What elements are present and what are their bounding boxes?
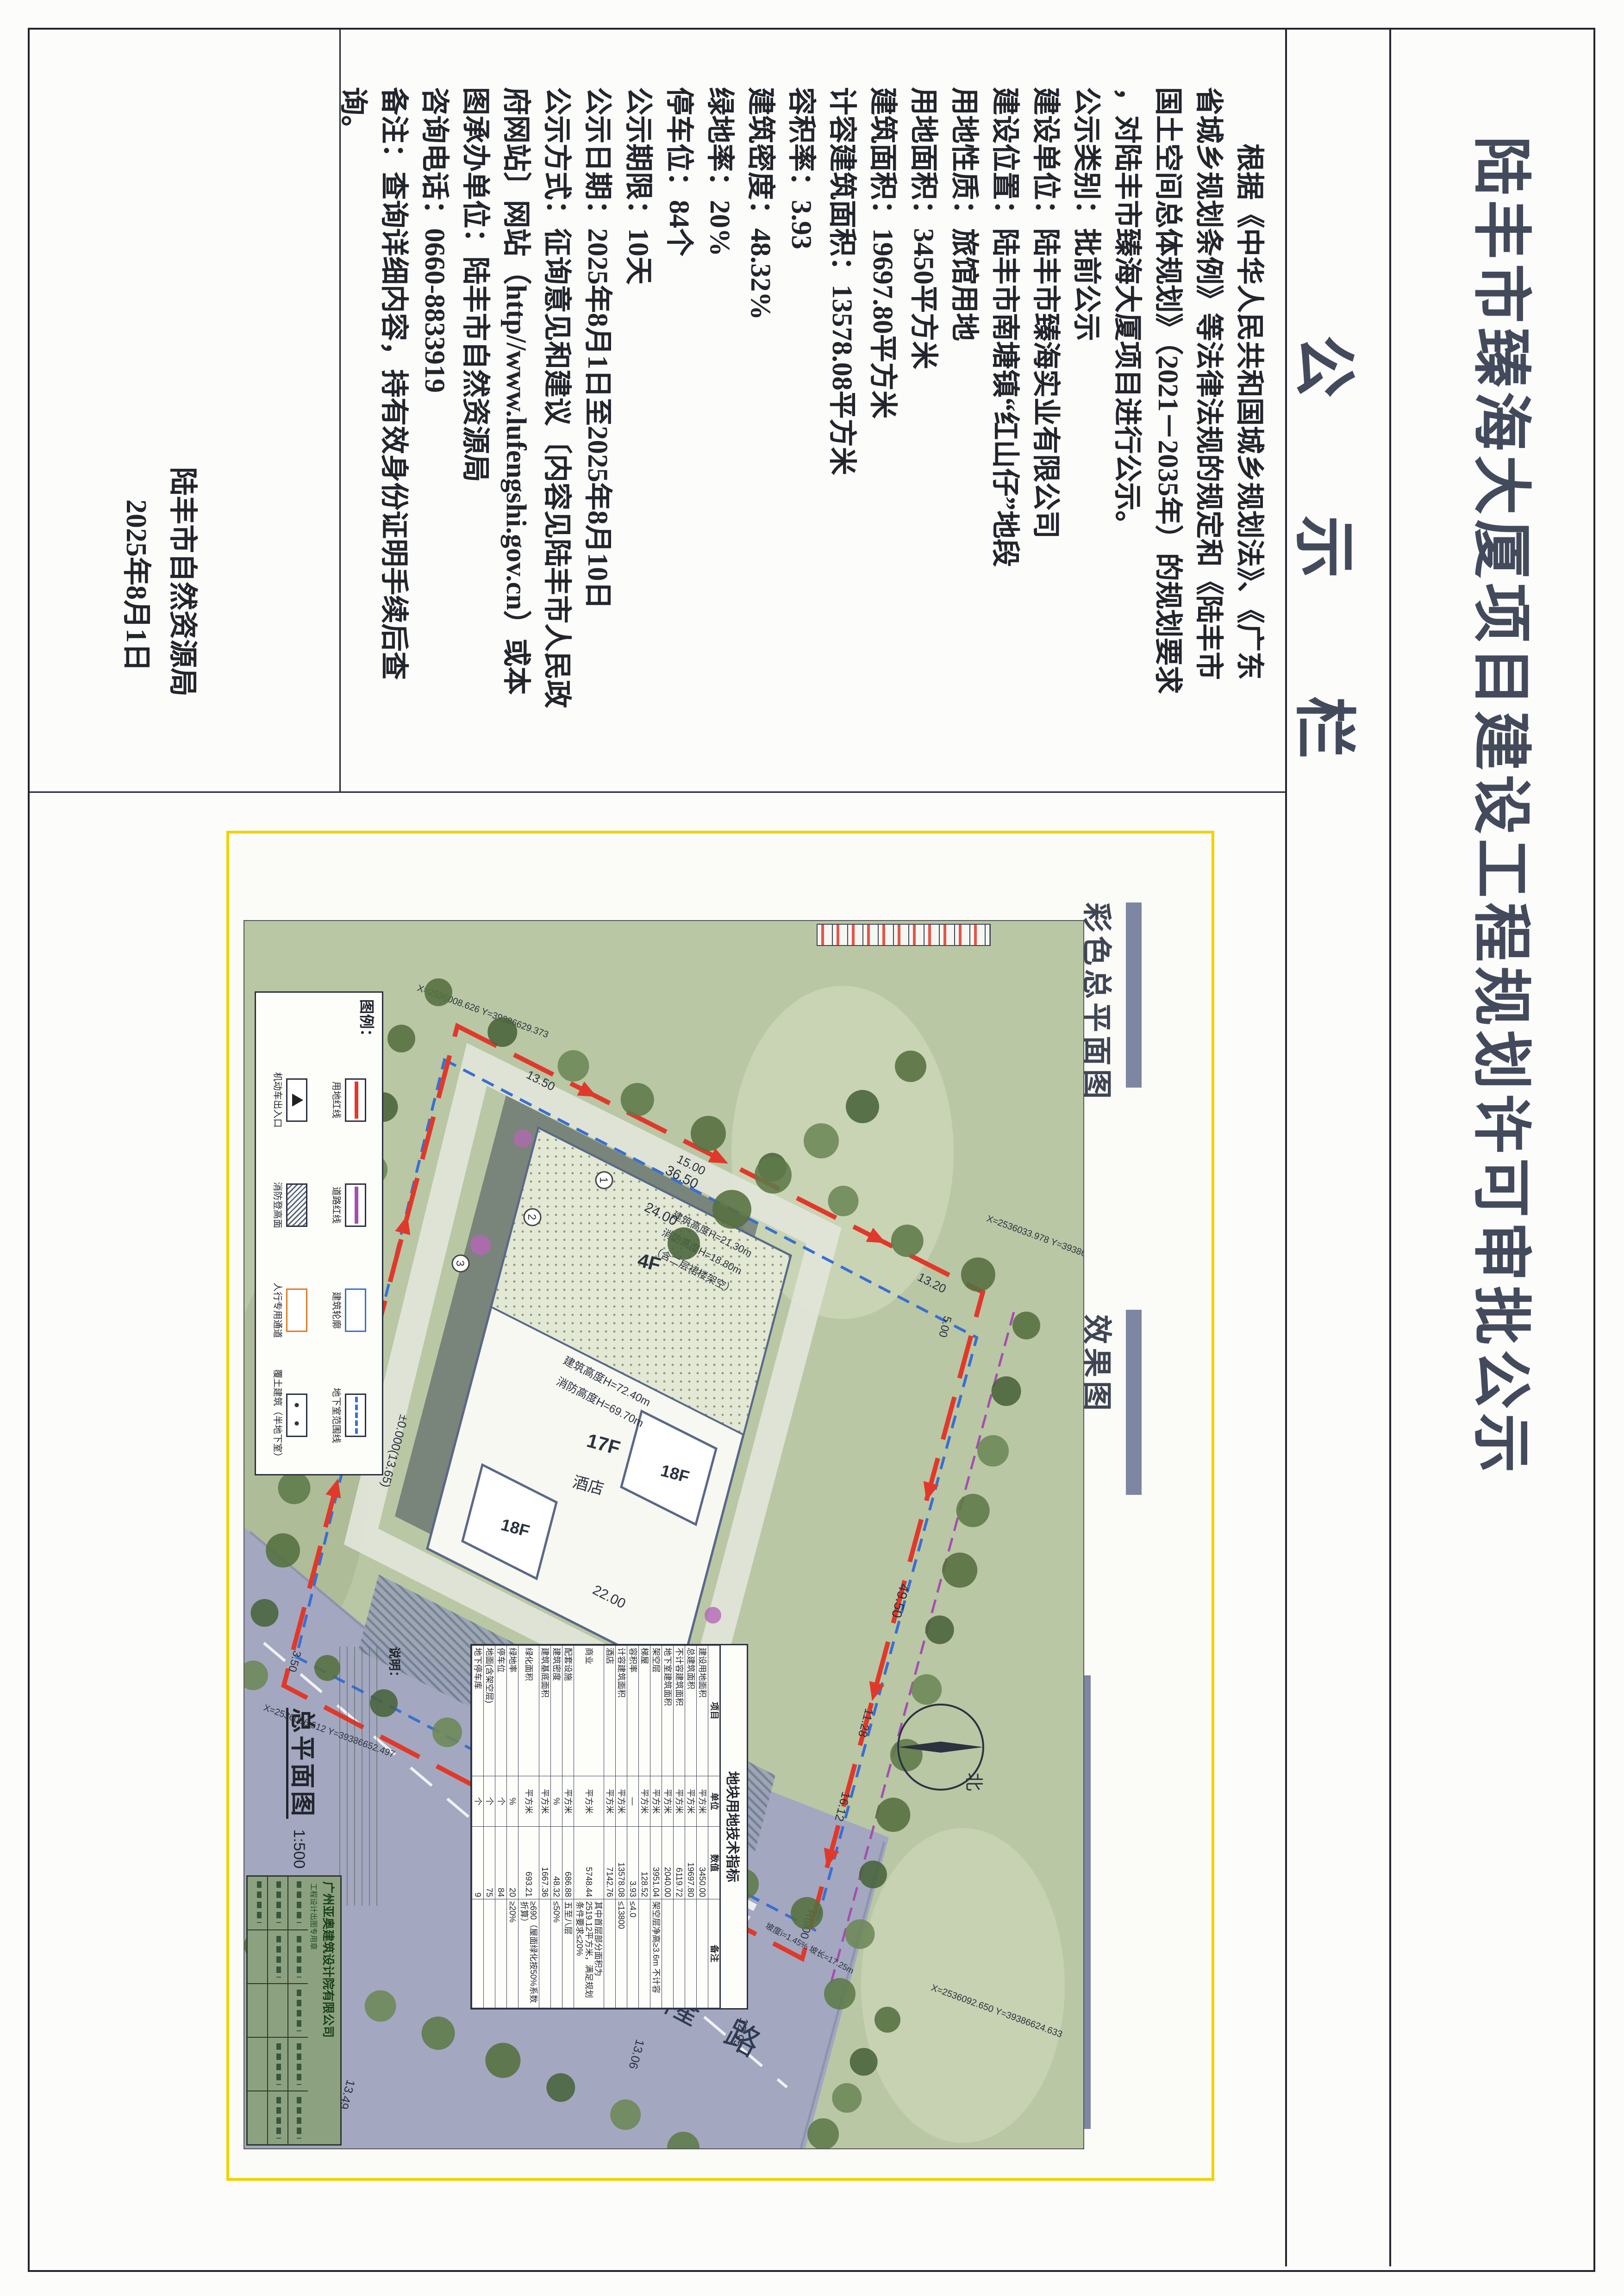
indicator-value: 20 <box>507 1827 518 1899</box>
indicator-value: 2040.00 <box>662 1827 674 1899</box>
planting-accent <box>705 1607 721 1624</box>
indicator-remark <box>604 1899 616 2008</box>
svg-text:11.28: 11.28 <box>856 1707 876 1739</box>
legend-grid: 用地红线 道路红线 建筑轮廓 地下室范围线 机动车出入口 消防登高面 人行专用通… <box>262 1048 377 1467</box>
signature-org: 陆丰市自然资源局 <box>165 467 206 697</box>
indicator-unit: 平方米 <box>539 1776 551 1827</box>
north-arrow: 北 <box>898 1705 984 1791</box>
indicator-remark <box>639 1899 650 2008</box>
page-title: 陆丰市臻海大厦项目建设工程规划许可审批公示 <box>1464 136 1549 1477</box>
indicator-remark: ≤13800 <box>616 1899 627 2008</box>
design-company-name: 广州亚奥建筑设计院有限公司 <box>320 1881 337 2038</box>
indicator-value: 693.21 <box>518 1827 539 1899</box>
indicator-unit: % <box>507 1776 518 1827</box>
indicator-item: 绿化面积 <box>518 1646 539 1776</box>
legend-swatch-pedestrian <box>287 1288 308 1332</box>
label-bar-rendering <box>1126 1310 1142 1495</box>
indicator-item: 停车位 <box>495 1646 507 1776</box>
scanned-notice-page: 陆丰市臻海大厦项目建设工程规划许可审批公示 公示栏 根据《中华人民共和国城乡规划… <box>0 0 1624 2296</box>
title-block: 广州亚奥建筑设计院有限公司 工程设计出图专用章 <box>246 1875 342 2146</box>
plan-scale-label: 总平面图 1:500 <box>287 1708 323 1869</box>
title-block-grid <box>248 1877 308 2144</box>
notice-line: 公示期限：10天 <box>618 87 658 781</box>
indicator-row: 梯屋 平方米 128.52 <box>639 1646 650 2008</box>
indicator-item: 不计容建筑面积 <box>674 1646 685 1776</box>
legend-label: 覆土建筑（半地下室） <box>273 1369 283 1462</box>
notes-fine-print <box>339 1647 384 1906</box>
legend-label: 建筑轮廓 <box>331 1292 342 1329</box>
notice-line: 停车位：84个 <box>658 87 699 781</box>
indicator-unit: — <box>627 1776 639 1827</box>
col-header: 数值 <box>708 1827 720 1899</box>
indicator-value: 6119.72 <box>674 1827 685 1899</box>
legend-swatch-entrance <box>287 1078 308 1122</box>
indicator-table-title: 地块用地技术指标 <box>720 1645 747 2008</box>
legend-label: 道路红线 <box>331 1187 342 1224</box>
col-header: 单位 <box>708 1776 720 1827</box>
legend-label: 消防登高面 <box>273 1182 283 1228</box>
indicator-item: 地面(含架空层) <box>484 1646 495 1776</box>
indicator-unit: 平方米 <box>604 1776 616 1827</box>
legend-box: 图例： 用地红线 道路红线 建筑轮廓 地下室范围线 机动车出入口 消防登高面 人… <box>255 991 383 1475</box>
notice-line: 用地面积：3450平方米 <box>903 87 943 781</box>
indicator-remark: ≥690（屋面绿化按50%系数折算） <box>518 1899 539 2008</box>
signature-date: 2025年8月1日 <box>119 499 160 672</box>
notice-line: ，对陆丰市臻海大厦项目进行公示。 <box>1106 87 1147 781</box>
plan-name: 总平面图 <box>286 1708 316 1819</box>
indicator-row: 不计容建筑面积 平方米 6119.72 <box>674 1646 685 2008</box>
indicator-row: 绿化面积 平方米 693.21 ≥690（屋面绿化按50%系数折算） <box>518 1646 539 2008</box>
indicator-unit: 平方米 <box>674 1776 685 1827</box>
indicator-item: 绿地率 <box>507 1646 518 1776</box>
indicator-unit: 平方米 <box>562 1776 574 1827</box>
notice-line: 建筑面积：19697.80平方米 <box>862 87 903 781</box>
col-header: 备注 <box>708 1899 720 2008</box>
indicator-row: 容积率 — 3.93 ≤4.0 <box>627 1646 639 2008</box>
indicator-item: 商业 <box>574 1646 604 1776</box>
indicator-unit: 平方米 <box>650 1776 662 1827</box>
indicator-value: 3.93 <box>627 1827 639 1899</box>
indicator-item: 地下室建筑面积 <box>662 1646 674 1776</box>
indicator-value: 9 <box>472 1827 484 1899</box>
title-row: 陆丰市臻海大厦项目建设工程规划许可审批公示 <box>1391 30 1593 2266</box>
indicator-row: 地下室建筑面积 平方米 2040.00 <box>662 1646 674 2008</box>
indicator-unit: 个 <box>472 1776 484 1827</box>
rotated-document-canvas: 陆丰市臻海大厦项目建设工程规划许可审批公示 公示栏 根据《中华人民共和国城乡规划… <box>0 0 1624 2296</box>
indicator-value: 75 <box>484 1827 495 1899</box>
col-header: 项目 <box>708 1646 720 1776</box>
drawing-stamp-label: 工程设计出图专用章 <box>309 1883 320 1950</box>
indicator-row: 建筑基底面积 平方米 1667.36 <box>539 1646 551 2008</box>
review-stamp-grid <box>817 924 991 946</box>
notes-block: 说明： <box>339 1647 404 1906</box>
legend-swatch-redline <box>345 1078 367 1122</box>
notice-line: 用地性质：旅馆用地 <box>943 87 984 781</box>
notice-text-block: 根据《中华人民共和国城乡规划法》、《广东省城乡规划条例》等法律法规的规定和《陆丰… <box>332 87 1269 781</box>
indicator-unit: 平方米 <box>616 1776 627 1827</box>
notice-line: 国土空间总体规划》（2021－2035年）的规划要求 <box>1147 87 1188 781</box>
indicator-unit: 个 <box>484 1776 495 1827</box>
notice-line: 计容建筑面积：13578.08平方米 <box>821 87 862 781</box>
indicator-row: 地面(含架空层) 个 75 <box>484 1646 495 2008</box>
indicator-row: 酒店 平方米 7142.76 <box>604 1646 616 2008</box>
notice-line: 建筑密度：48.32% <box>740 87 781 781</box>
notice-line: 绿地率：20% <box>699 87 740 781</box>
indicator-value: 128.52 <box>639 1827 650 1899</box>
indicator-remark: 架空层净高≥3.6m 不计容 <box>650 1899 662 2008</box>
indicator-value: 7142.76 <box>604 1827 616 1899</box>
indicator-item: 建筑基底面积 <box>539 1646 551 1776</box>
indicator-table: 地块用地技术指标 项目 单位 数值 备注 <box>470 1644 748 2010</box>
notice-line: 根据《中华人民共和国城乡规划法》、《广东 <box>1229 87 1269 781</box>
svg-text:1: 1 <box>597 1177 610 1183</box>
notice-line: 建设位置：陆丰市南塘镇“红山仔”地段 <box>984 87 1025 781</box>
indicator-row: 总建筑面积 平方米 19697.80 <box>685 1646 697 2008</box>
indicator-remark: ≤4.0 <box>627 1899 639 2008</box>
indicator-row: 计容建筑面积 平方米 13578.08 ≤13800 <box>616 1646 627 2008</box>
indicator-row: 商业 平方米 5748.44 其中首层部分面积为2519.12平方米，满足规划条… <box>574 1646 604 2008</box>
notice-line: 备注：查询详细内容，持有效身份证明手续后查 <box>373 87 414 781</box>
legend-swatch-building <box>345 1288 367 1332</box>
indicator-unit: 平方米 <box>574 1776 604 1827</box>
indicator-row: 地下停车库 个 9 <box>472 1646 484 2008</box>
svg-text:2: 2 <box>525 1214 538 1220</box>
indicator-item: 容积率 <box>627 1646 639 1776</box>
indicator-unit: 平方米 <box>662 1776 674 1827</box>
indicator-item: 总建筑面积 <box>685 1646 697 1776</box>
legend-swatch-covered <box>287 1394 308 1437</box>
notice-line: 图承办单位：陆丰市自然资源局 <box>455 87 495 781</box>
notice-line: 询。 <box>332 87 373 781</box>
indicator-row: 停车位 个 84 <box>495 1646 507 2008</box>
svg-text:16.12: 16.12 <box>832 1790 853 1823</box>
indicator-unit: 平方米 <box>639 1776 650 1827</box>
indicator-row: 建筑密度 % 48.32 ≤50% <box>551 1646 562 2008</box>
board-header-row: 公示栏 <box>1285 30 1391 2266</box>
indicator-item: 地下停车库 <box>472 1646 484 1776</box>
indicator-row: 绿地率 % 20 ≥20% <box>507 1646 518 2008</box>
site-plan-sheet: 车隆路 4F 17F 18F 18 <box>244 920 1084 2149</box>
indicator-item: 配套设施 <box>562 1646 574 1776</box>
board-label: 公示栏 <box>1285 335 1375 877</box>
indicator-value: 3450.00 <box>697 1827 708 1899</box>
indicator-item: 梯屋 <box>639 1646 650 1776</box>
indicator-unit: 平方米 <box>518 1776 539 1827</box>
indicator-value: 5748.44 <box>574 1827 604 1899</box>
indicator-item: 酒店 <box>604 1646 616 1776</box>
indicator-remark <box>662 1899 674 2008</box>
indicator-remark <box>697 1899 708 2008</box>
svg-text:49.50: 49.50 <box>888 1582 912 1619</box>
signature-divider <box>339 30 341 791</box>
notice-line: 省城乡规划条例》等法律法规的规定和《陆丰市 <box>1188 87 1229 781</box>
legend-label: 用地红线 <box>331 1082 342 1119</box>
notice-line: 府网站〕网站（http//www.lufengshi.gov.cn）或本 <box>495 87 536 781</box>
legend-label: 人行专用通道 <box>273 1282 283 1338</box>
plan-ratio: 1:500 <box>290 1829 308 1868</box>
indicator-row: 架空层 平方米 3951.04 架空层净高≥3.6m 不计容 <box>650 1646 662 2008</box>
indicator-item: 计容建筑面积 <box>616 1646 627 1776</box>
svg-text:3: 3 <box>454 1260 466 1266</box>
indicator-remark <box>685 1899 697 2008</box>
indicator-row: 建设用地面积 平方米 3450.00 <box>697 1646 708 2008</box>
field-patch <box>861 1828 1065 2143</box>
indicator-unit: 平方米 <box>697 1776 708 1827</box>
north-label: 北 <box>963 1773 984 1791</box>
indicator-value: 686.88 <box>562 1827 574 1899</box>
indicator-remark: 五至八层 <box>562 1899 574 2008</box>
notes-title: 说明： <box>387 1647 404 1906</box>
indicator-value: 84 <box>495 1827 507 1899</box>
indicator-remark: ≤50% <box>551 1899 562 2008</box>
indicator-value: 3951.04 <box>650 1827 662 1899</box>
indicator-unit: 个 <box>495 1776 507 1827</box>
legend-swatch-basement <box>345 1394 367 1437</box>
legend-label: 机动车出入口 <box>273 1072 283 1128</box>
indicator-unit: % <box>551 1776 562 1827</box>
cell-divider <box>30 791 1285 793</box>
indicator-remark <box>484 1899 495 2008</box>
notice-line: 容积率：3.93 <box>781 87 821 781</box>
indicator-remark <box>539 1899 551 2008</box>
legend-label: 地下室范围线 <box>331 1388 342 1443</box>
notice-line: 建设单位：陆丰市臻海实业有限公司 <box>1025 87 1066 781</box>
indicator-remark <box>674 1899 685 2008</box>
indicator-item: 架空层 <box>650 1646 662 1776</box>
label-bar-site-plan <box>1126 902 1142 1088</box>
indicator-remark <box>472 1899 484 2008</box>
planting-accent <box>514 1129 532 1148</box>
notice-line: 公示类别：批前公示 <box>1066 87 1106 781</box>
notice-line: 公示日期：2025年8月1日至2025年8月10日 <box>577 87 618 781</box>
indicator-value: 48.32 <box>551 1827 562 1899</box>
indicator-value: 1667.36 <box>539 1827 551 1899</box>
indicator-row: 配套设施 平方米 686.88 五至八层 <box>562 1646 574 2008</box>
svg-text:X=2536033.978 Y=39386596.858: X=2536033.978 Y=39386596.858 <box>985 1213 1083 1270</box>
indicator-value: 13578.08 <box>616 1827 627 1899</box>
indicator-item: 建筑密度 <box>551 1646 562 1776</box>
planting-accent <box>470 1235 491 1255</box>
indicator-remark: ≥20% <box>507 1899 518 2008</box>
notice-line: 公示方式：征询意见和建议〔内容见陆丰市人民政 <box>536 87 577 781</box>
indicator-remark <box>495 1899 507 2008</box>
legend-swatch-fire-lane <box>287 1183 308 1227</box>
legend-title: 图例： <box>357 999 378 1044</box>
indicator-unit: 平方米 <box>685 1776 697 1827</box>
indicator-value: 19697.80 <box>685 1827 697 1899</box>
legend-swatch-roadline <box>345 1183 367 1227</box>
indicator-item: 建设用地面积 <box>697 1646 708 1776</box>
indicator-remark: 其中首层部分面积为2519.12平方米，满足规划条件要求≤20% <box>574 1899 604 2008</box>
notice-line: 咨询电话：0660-8833919 <box>414 87 455 781</box>
